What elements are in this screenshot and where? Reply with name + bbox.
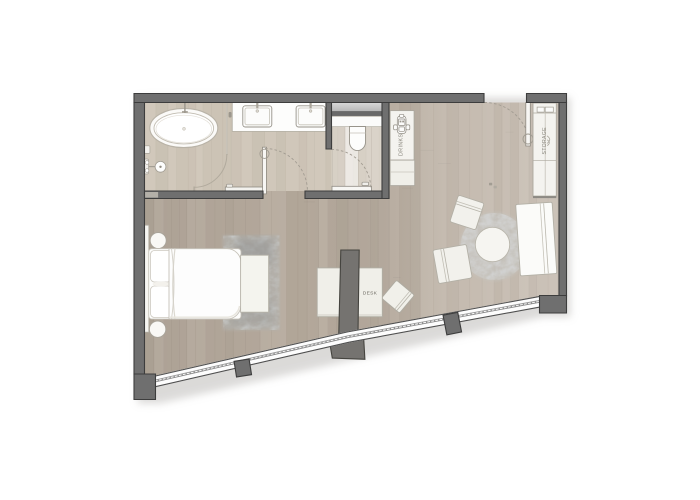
svg-text:STORAGE: STORAGE	[542, 127, 548, 155]
svg-text:DESK: DESK	[363, 291, 378, 297]
svg-text:DRINKS: DRINKS	[399, 134, 405, 156]
